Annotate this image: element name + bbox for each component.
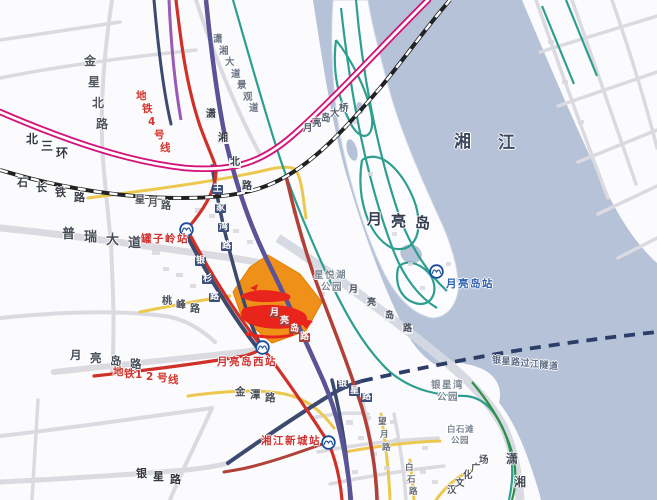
station-label-yueliangdao: 月亮岛站 [446, 279, 494, 290]
metro-station-icon-yueliangdao-xi [255, 340, 270, 355]
station-label-guanziling: 罐子岭站 [141, 234, 189, 245]
station-label-xiangjiang-xincheng: 湘江新城站 [261, 436, 321, 447]
station-label-yueliangdao-xi: 月亮岛西站 [217, 357, 277, 368]
metro-station-icon-xiangjiang-xincheng [321, 435, 336, 450]
map-canvas: 金星北路北三环石长铁路星月路普瑞大道地铁4号线潇湘大道景观道潇湘北路月亮岛大桥王… [0, 0, 657, 500]
metro-station-icon-yueliangdao [429, 264, 444, 279]
